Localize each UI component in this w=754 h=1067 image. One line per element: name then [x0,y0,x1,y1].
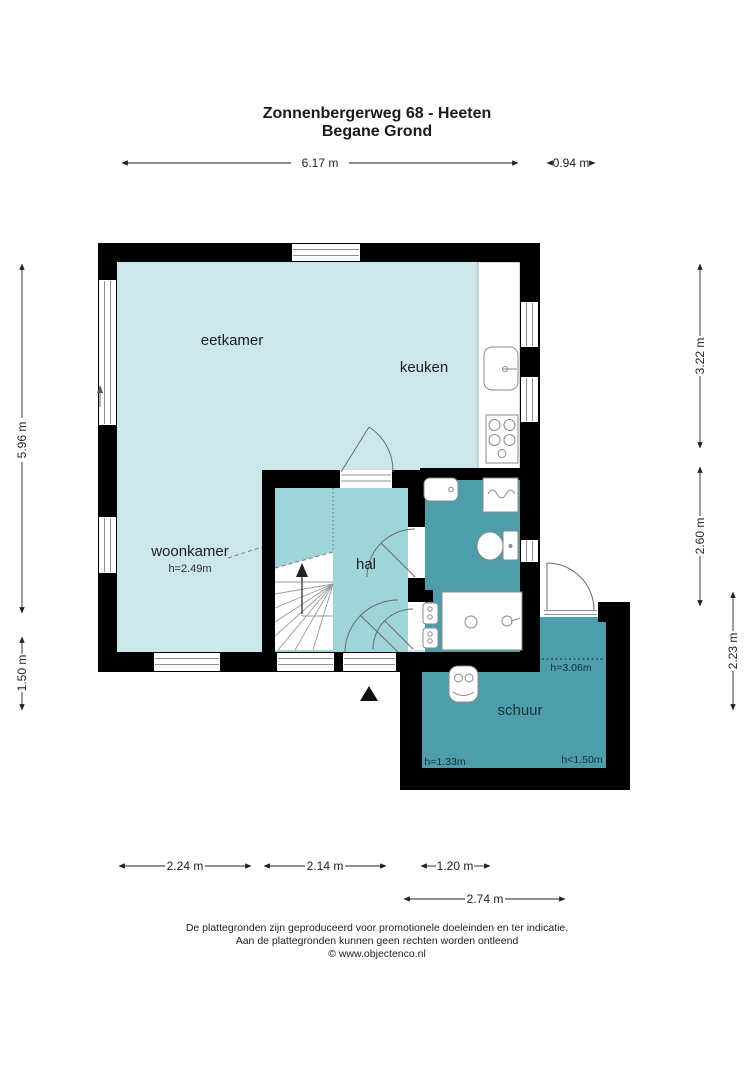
disclaimer-line3: © www.objectenco.nl [328,948,426,960]
stove-icon [486,415,518,463]
title-address: Zonnenbergerweg 68 - Heeten [263,105,492,122]
label-schuur-height-back: h=3.06m [550,662,591,674]
dim-left-main: 5.96 m [15,264,29,613]
shower-icon [442,592,522,650]
window-bottom-stairs [277,653,334,671]
label-schuur-height-right: h<1.50m [561,754,602,766]
wall-woonkamer-hal [262,470,275,652]
window-right-lower [521,377,538,422]
schuur-doorway-opening [543,608,598,617]
dim-bottom-woonkamer: 2.24 m [119,859,251,873]
wall-schuur-right [606,602,630,790]
disclaimer: De plattegronden zijn geproduceerd voor … [186,922,568,960]
dim-bottom-hal: 2.14 m [264,859,386,873]
svg-text:1.20 m: 1.20 m [437,859,474,873]
wall-hal-bathroom-upper [408,470,425,527]
toilet-icon [477,531,518,560]
dim-bottom-schuur: 2.74 m [404,892,565,906]
window-left-small [99,517,116,573]
svg-text:2.14 m: 2.14 m [307,859,344,873]
boiler-icon [449,666,478,702]
svg-text:2.24 m: 2.24 m [167,859,204,873]
svg-text:2.74 m: 2.74 m [467,892,504,906]
disclaimer-line1: De plattegronden zijn geproduceerd voor … [186,922,568,934]
svg-text:2.60 m: 2.60 m [693,518,707,555]
label-keuken: keuken [400,359,448,376]
window-bathroom [521,540,538,562]
label-schuur-height-left: h=1.33m [424,756,465,768]
door-back-exterior [547,563,594,610]
title-floor: Begane Grond [322,123,432,140]
window-left-tall [99,280,116,425]
front-door-opening [343,653,396,671]
bathroom-sink-icon [424,478,458,501]
plan-title: Zonnenbergerweg 68 - Heeten Begane Grond [263,105,492,140]
disclaimer-line2: Aan de plattegronden kunnen geen rechten… [236,935,519,947]
label-schuur: schuur [497,702,542,719]
hal-doorway-opening [340,470,392,488]
label-eetkamer: eetkamer [201,332,264,349]
window-bottom-woonkamer [154,653,220,671]
floorplan-drawing: Zonnenbergerweg 68 - Heeten Begane Grond [0,0,754,1067]
wall-schuur-corner [598,602,630,622]
wall-shower-stub [408,590,433,602]
dim-top-main: 6.17 m [122,156,518,170]
svg-text:0.94 m: 0.94 m [553,156,590,170]
entrance-arrow-icon [360,686,378,701]
dim-right-top: 3.22 m [693,264,707,448]
window-top [292,244,360,261]
bathroom-door-gap [408,527,425,578]
dim-right-extension: 2.23 m [726,592,740,710]
svg-text:2.23 m: 2.23 m [726,633,740,670]
wall-schuur-bottom [400,768,630,790]
svg-text:1.50 m: 1.50 m [15,655,29,692]
washing-machine-icon [483,478,518,512]
svg-text:3.22 m: 3.22 m [693,338,707,375]
label-woonkamer: woonkamer [150,543,229,560]
window-right-upper [521,302,538,347]
dim-right-middle: 2.60 m [693,467,707,606]
dim-bottom-passage: 1.20 m [421,859,490,873]
label-woonkamer-height: h=2.49m [168,563,211,575]
label-hal: hal [356,556,376,573]
svg-text:5.96 m: 5.96 m [15,422,29,459]
stair-well [275,552,333,650]
dim-left-extension: 1.50 m [15,637,29,710]
svg-text:6.17 m: 6.17 m [302,156,339,170]
dim-top-extension: 0.94 m [547,156,595,170]
floorplan-page: Zonnenbergerweg 68 - Heeten Begane Grond [0,0,754,1067]
